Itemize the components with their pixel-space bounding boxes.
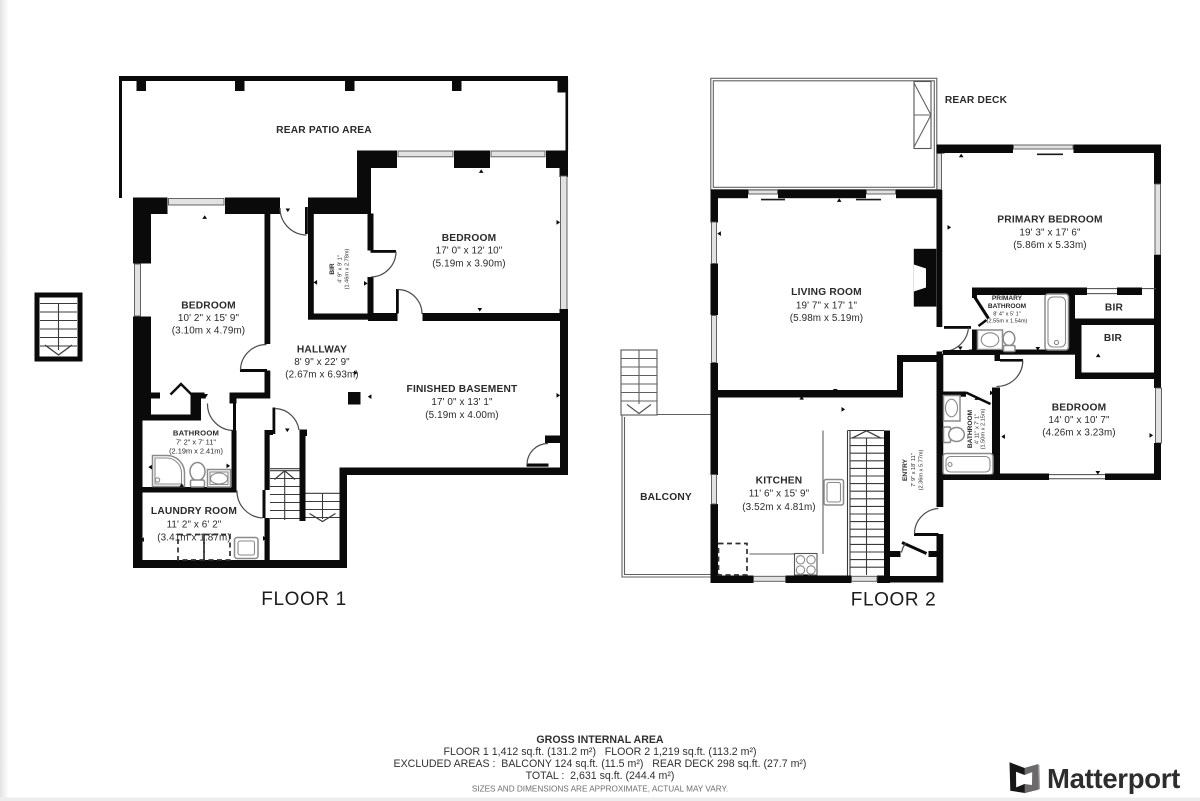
svg-text:(2.55m x 1.54m): (2.55m x 1.54m) (987, 319, 1028, 325)
svg-text:14' 0" x 10' 7": 14' 0" x 10' 7" (1048, 415, 1110, 426)
svg-text:SIZES AND DIMENSIONS ARE APPRO: SIZES AND DIMENSIONS ARE APPROXIMATE, AC… (472, 785, 728, 794)
svg-text:BIR: BIR (1104, 333, 1123, 344)
svg-text:(5.19m x 3.90m): (5.19m x 3.90m) (432, 259, 505, 270)
svg-text:(4.26m x 3.23m): (4.26m x 3.23m) (1042, 428, 1115, 439)
svg-text:11' 6" x 15' 9": 11' 6" x 15' 9" (749, 489, 810, 500)
svg-text:(2.67m x 6.93m): (2.67m x 6.93m) (285, 370, 358, 381)
svg-text:17' 0" x 12' 10": 17' 0" x 12' 10" (436, 246, 503, 257)
svg-text:17' 0" x 13' 1": 17' 0" x 13' 1" (431, 397, 493, 408)
svg-text:PRIMARY: PRIMARY (992, 295, 1023, 302)
svg-text:BATHROOM: BATHROOM (173, 429, 219, 438)
svg-text:BEDROOM: BEDROOM (181, 301, 236, 312)
svg-text:8' 4" x 5' 1": 8' 4" x 5' 1" (993, 312, 1021, 318)
svg-text:19' 7" x 17' 1": 19' 7" x 17' 1" (796, 301, 858, 312)
svg-text:FINISHED BASEMENT: FINISHED BASEMENT (407, 384, 519, 395)
svg-text:FLOOR 1 1,412 sq.ft. (131.2 m²: FLOOR 1 1,412 sq.ft. (131.2 m²) FLOOR 2 … (443, 746, 756, 758)
svg-text:BEDROOM: BEDROOM (1052, 403, 1107, 414)
svg-text:FLOOR 2: FLOOR 2 (851, 590, 937, 611)
svg-text:PRIMARY BEDROOM: PRIMARY BEDROOM (997, 215, 1102, 226)
svg-text:(3.52m x 4.81m): (3.52m x 4.81m) (742, 502, 815, 513)
svg-text:(5.98m x 5.19m): (5.98m x 5.19m) (790, 313, 863, 324)
svg-text:GROSS INTERNAL AREA: GROSS INTERNAL AREA (536, 734, 663, 746)
svg-text:BIR: BIR (329, 263, 336, 275)
svg-text:7' 9" x 18' 11": 7' 9" x 18' 11" (911, 453, 917, 486)
svg-text:(1.46m x 2.78m): (1.46m x 2.78m) (345, 249, 351, 290)
svg-text:Matterport: Matterport (1047, 763, 1180, 794)
svg-text:8' 9" x 22' 9": 8' 9" x 22' 9" (294, 357, 350, 368)
svg-text:KITCHEN: KITCHEN (756, 476, 803, 487)
svg-text:(3.10m x 4.79m): (3.10m x 4.79m) (172, 326, 245, 337)
svg-text:EXCLUDED AREAS : BALCONY 124: EXCLUDED AREAS : BALCONY 124 sq.ft. (11.… (394, 758, 807, 770)
svg-text:HALLWAY: HALLWAY (297, 345, 347, 356)
svg-text:19' 3" x 17' 6": 19' 3" x 17' 6" (1019, 228, 1081, 239)
svg-text:BEDROOM: BEDROOM (442, 233, 497, 244)
svg-text:BATHROOM: BATHROOM (988, 303, 1027, 310)
svg-text:REAR DECK: REAR DECK (945, 95, 1008, 106)
svg-text:(2.36m x 5.77m): (2.36m x 5.77m) (919, 450, 925, 491)
svg-text:TOTAL : 2,631 sq.ft. (244.4 m: TOTAL : 2,631 sq.ft. (244.4 m²) (526, 770, 675, 782)
svg-text:(5.86m x 5.33m): (5.86m x 5.33m) (1013, 240, 1086, 251)
svg-text:FLOOR 1: FLOOR 1 (261, 589, 347, 610)
svg-text:4' 9" x 9' 1": 4' 9" x 9' 1" (338, 255, 344, 283)
svg-text:BALCONY: BALCONY (640, 492, 692, 503)
svg-text:(5.19m x 4.00m): (5.19m x 4.00m) (425, 410, 498, 421)
svg-text:11' 2" x 6' 2": 11' 2" x 6' 2" (167, 520, 222, 531)
svg-text:REAR PATIO AREA: REAR PATIO AREA (276, 125, 372, 136)
svg-text:BATHROOM: BATHROOM (967, 409, 974, 448)
svg-text:LAUNDRY ROOM: LAUNDRY ROOM (151, 506, 237, 517)
svg-text:ENTRY: ENTRY (902, 458, 909, 481)
svg-text:7' 2" x 7' 11": 7' 2" x 7' 11" (176, 438, 216, 447)
svg-text:10' 2" x 15' 9": 10' 2" x 15' 9" (178, 313, 240, 324)
svg-text:(1.50m x 2.15m): (1.50m x 2.15m) (981, 409, 987, 450)
svg-text:(2.19m x 2.41m): (2.19m x 2.41m) (169, 447, 223, 456)
svg-text:LIVING ROOM: LIVING ROOM (791, 287, 862, 298)
svg-text:(3.41m x 1.87m): (3.41m x 1.87m) (157, 533, 230, 544)
svg-text:BIR: BIR (1105, 303, 1124, 314)
